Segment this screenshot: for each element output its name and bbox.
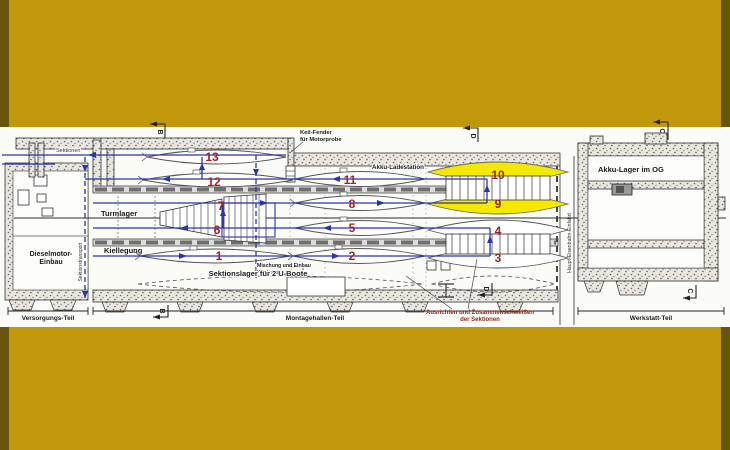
label-sektionslager: Sektionslager für 2 U-Boote (209, 269, 308, 278)
section-marker-letter-c-top: C (658, 128, 665, 133)
label-sektionen: Sektionen (56, 148, 80, 154)
station-number-6: 6 (214, 223, 221, 237)
section-marker-letter-b-top: B (156, 129, 163, 134)
label-turmlager: Turmlager (101, 209, 137, 218)
supply-annex (5, 163, 88, 300)
station-number-9: 9 (495, 197, 502, 211)
station-number-1: 1 (216, 249, 223, 263)
station-number-5: 5 (349, 221, 356, 235)
label-dieselmotor-1: Dieselmotor- (30, 251, 73, 258)
label-ausrichten-2: der Sektionen (460, 317, 500, 323)
label-ausrichten-1: Ausrichten und Zusammenschweißen (426, 310, 534, 316)
exit-gate-bar (38, 143, 44, 177)
station-number-13: 13 (205, 150, 219, 164)
zone-versorgungs-teil: Versorgungs-Teil (22, 315, 75, 322)
zone-montagehallen-teil: Montagehallen-Teil (286, 315, 345, 322)
station-number-2: 2 (349, 249, 356, 263)
station-number-7: 7 (218, 199, 225, 213)
section-marker-letter-d-bottom: D (482, 286, 489, 291)
label-sektionstransport: Sektionstransport (78, 242, 84, 282)
exit-gate-bar (29, 143, 35, 177)
zone-werkstatt-teil: Werkstatt-Teil (630, 315, 673, 322)
workshop-block (578, 133, 725, 295)
label-haupt-eisenbahn: Haupt-Eisenbahn-Einfahrt (567, 213, 573, 273)
hall-left-wall (93, 140, 101, 188)
bunker-floorplan-diagram: B D C B D C Sektionen Keil-Fender für Mo… (0, 0, 730, 450)
label-kiellegung: Kiellegung (104, 246, 143, 255)
label-dieselmotor-2: Einbau (39, 259, 62, 266)
label-keil-fender-2: für Motorprobe (300, 137, 342, 143)
station-number-4: 4 (495, 224, 502, 238)
label-akku-lager-im-og: Akku-Lager im OG (598, 165, 664, 174)
section-marker-letter-d-top: D (469, 133, 476, 138)
station-number-11: 11 (344, 173, 357, 187)
section-marker-letter-c-bottom: C (686, 288, 693, 293)
label-keil-fender-1: Keil-Fender (300, 130, 333, 136)
screenshot-root: B D C B D C Sektionen Keil-Fender für Mo… (0, 0, 730, 450)
station-number-10: 10 (491, 168, 505, 182)
label-akku-ladestation: Akku-Ladestation (372, 164, 424, 171)
station-number-8: 8 (349, 197, 356, 211)
station-number-3: 3 (495, 251, 502, 265)
station-number-12: 12 (207, 175, 221, 189)
